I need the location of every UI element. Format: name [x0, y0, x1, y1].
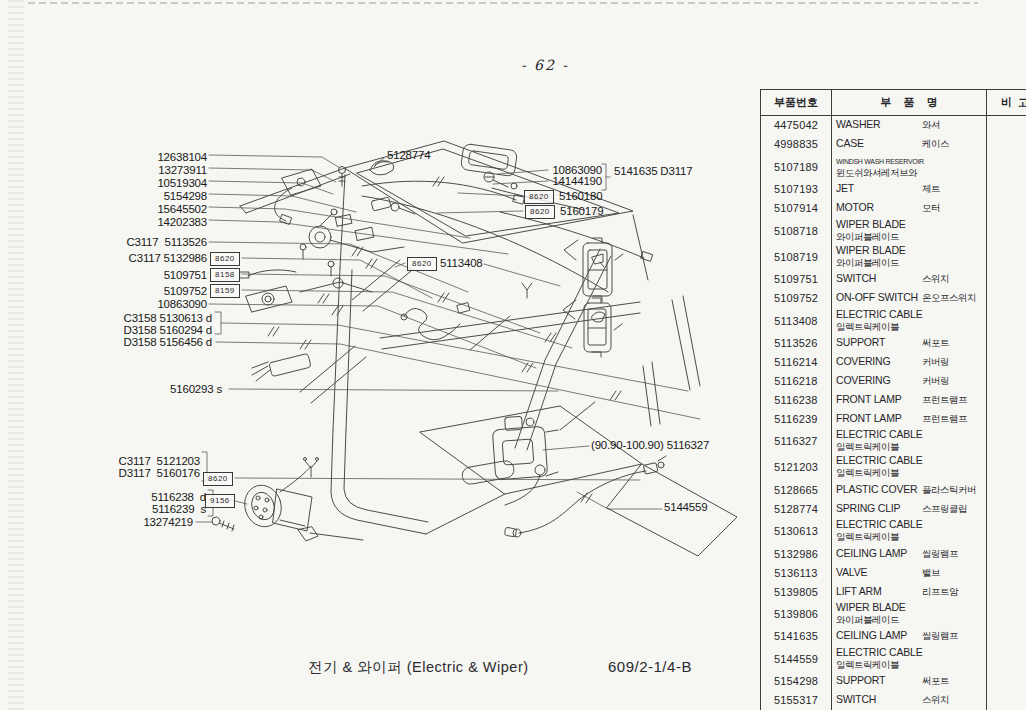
part-name-cell: FRONT LAMP프런트램프: [832, 390, 987, 409]
table-row: 5139806WIPER BLADE와이퍼블레이드: [761, 601, 1026, 627]
table-row: 5132986CEILING LAMP씰링램프: [761, 544, 1026, 563]
part-name-cell: WIPER BLADE와이퍼블레이드: [832, 601, 987, 627]
part-name-cell: ELECTRIC CABLE일렉트릭케이블: [832, 308, 987, 334]
table-row: 5107193JET제트: [761, 180, 1026, 199]
part-name-en: WINDSH WASH RESERVOIR: [836, 158, 922, 165]
remark-cell: [987, 116, 1026, 135]
leader-lines: [196, 155, 700, 522]
part-number-cell: 5136113: [761, 563, 832, 582]
part-number-cell: 5130613: [761, 518, 832, 544]
part-name-en: ON-OFF SWITCH: [836, 291, 922, 303]
part-number-cell: 5132986: [761, 544, 832, 563]
callout-15645502: 15645502: [120, 203, 207, 215]
part-number-cell: 5108719: [761, 244, 832, 270]
remark-cell: [987, 454, 1026, 480]
part-number-cell: 5116327: [761, 428, 832, 454]
callout-5113526: C3117 5113526: [115, 236, 207, 248]
table-row: 5108719WIPER BLADE와이퍼블레이드: [761, 244, 1026, 270]
part-name-cell: ELECTRIC CABLE일렉트릭케이블: [832, 428, 987, 454]
part-name-en: ELECTRIC CABLE: [836, 646, 922, 658]
screw-icon: [212, 517, 234, 531]
table-row: 5144559ELECTRIC CABLE일렉트릭케이블: [761, 646, 1026, 672]
part-number-cell: 5113526: [761, 334, 832, 353]
callout-box-5116239: 9156: [205, 494, 235, 508]
part-name-ko: 일렉트릭케이블: [836, 531, 899, 542]
table-row: 5155317SWITCH스위치: [761, 691, 1026, 710]
remark-cell: [987, 563, 1026, 582]
part-name-ko: 커버링: [922, 375, 949, 386]
part-name-ko: 일렉트릭케이블: [836, 321, 899, 332]
part-name-ko: 윈도쉬와셔레저브와: [836, 167, 917, 178]
spring-clip: [370, 161, 394, 175]
part-name-en: CEILING LAMP: [836, 547, 922, 559]
callout-box-5113408: 8620: [407, 257, 437, 271]
callout-5128774: 5128774: [387, 149, 430, 161]
part-name-ko: 와셔: [922, 119, 940, 130]
part-name-cell: CEILING LAMP씰링램프: [832, 544, 987, 563]
part-name-en: ELECTRIC CABLE: [836, 308, 922, 320]
part-name-en: SPRING CLIP: [836, 502, 922, 514]
remark-cell: [987, 409, 1026, 428]
part-name-cell: JET제트: [832, 180, 987, 199]
part-name-cell: ON-OFF SWITCH온오프스위치: [832, 289, 987, 308]
part-name-en: SUPPORT: [836, 674, 922, 686]
table-row: 5113526SUPPORT써포트: [761, 334, 1026, 353]
header-part-name: 부 품 명: [832, 90, 987, 116]
callout-13274219: 13274219: [108, 516, 193, 528]
table-row: 5141635CEILING LAMP씰링램프: [761, 627, 1026, 646]
remark-cell: [987, 646, 1026, 672]
callout-10863090-left: 10863090: [120, 298, 207, 310]
remark-cell: [987, 334, 1026, 353]
part-name-ko: 플라스틱커버: [922, 484, 976, 495]
part-name-cell: VALVE밸브: [832, 563, 987, 582]
remark-cell: [987, 289, 1026, 308]
parts-table-header: 부품번호 부 품 명 비 고: [761, 90, 1026, 116]
table-row: 5139805LIFT ARM리프트암: [761, 582, 1026, 601]
part-number-cell: 5141635: [761, 627, 832, 646]
front-lamp-unit: [239, 466, 318, 541]
header-part-number: 부품번호: [761, 90, 832, 116]
callout-12638104: 12638104: [120, 151, 207, 163]
table-row: 5109752ON-OFF SWITCH온오프스위치: [761, 289, 1026, 308]
table-row: 5136113VALVE밸브: [761, 563, 1026, 582]
table-row: 5128665PLASTIC COVER플라스틱커버: [761, 480, 1026, 499]
part-name-en: FRONT LAMP: [836, 393, 922, 405]
part-name-en: ELECTRIC CABLE: [836, 428, 922, 440]
callout-box-5160179: 8620: [525, 205, 555, 219]
part-name-en: ELECTRIC CABLE: [836, 454, 922, 466]
remark-cell: [987, 601, 1026, 627]
table-row: 5109751SWITCH스위치: [761, 270, 1026, 289]
part-number-cell: 5144559: [761, 646, 832, 672]
remark-cell: [987, 544, 1026, 563]
callout-5116238: 5116238 d: [128, 491, 206, 503]
part-name-ko: 일렉트릭케이블: [836, 659, 899, 670]
remark-cell: [987, 135, 1026, 154]
callout-5160176: D3117 5160176: [105, 467, 200, 479]
document-code: 609/2-1/4-B: [608, 658, 692, 675]
part-name-cell: SUPPORT써포트: [832, 334, 987, 353]
part-name-cell: PLASTIC COVER플라스틱커버: [832, 480, 987, 499]
part-number-cell: 5139806: [761, 601, 832, 627]
part-name-ko: 스프링클립: [922, 503, 967, 514]
part-number-cell: 5154298: [761, 672, 832, 691]
part-name-ko: 일렉트릭케이블: [836, 441, 899, 452]
table-row: 5130613ELECTRIC CABLE일렉트릭케이블: [761, 518, 1026, 544]
table-row: 5116239FRONT LAMP프런트램프: [761, 409, 1026, 428]
part-number-cell: 5116218: [761, 372, 832, 391]
part-name-ko: 와이퍼블레이드: [836, 231, 899, 242]
part-name-cell: FRONT LAMP프런트램프: [832, 409, 987, 428]
remark-cell: [987, 582, 1026, 601]
part-name-en: CASE: [836, 137, 922, 149]
part-name-ko: 밸브: [922, 567, 940, 578]
part-number-cell: 5155317: [761, 691, 832, 710]
part-name-ko: 씰링램프: [922, 548, 958, 559]
part-number-cell: 5128665: [761, 480, 832, 499]
part-number-cell: 5116239: [761, 409, 832, 428]
part-name-en: SWITCH: [836, 693, 922, 705]
remark-cell: [987, 372, 1026, 391]
part-name-ko: 제트: [922, 183, 940, 194]
callout-box-5109752: 8159: [210, 284, 240, 298]
part-name-ko: 모터: [922, 202, 940, 213]
part-number-cell: 5116214: [761, 353, 832, 372]
part-name-en: WIPER BLADE: [836, 601, 922, 613]
callout-box-5132986: 8620: [210, 252, 240, 266]
callout-5132986: C3117 5132986: [115, 252, 207, 264]
remark-cell: [987, 154, 1026, 180]
part-name-en: COVERING: [836, 355, 922, 367]
coiled-cable: [401, 303, 470, 340]
harness-connector: [252, 353, 311, 381]
callout-14144190: 14144190: [548, 175, 602, 187]
callout-5109752: 5109752: [130, 285, 207, 297]
callout-5154298: 5154298: [120, 190, 207, 202]
part-name-ko: 프런트램프: [922, 413, 967, 424]
rocker-switch-1: [583, 238, 612, 302]
part-number-cell: 4475042: [761, 116, 832, 135]
callout-14202383: 14202383: [120, 216, 207, 228]
part-name-ko: 일렉트릭케이블: [836, 467, 899, 478]
parts-table: 부품번호 부 품 명 비 고 4475042WASHER와셔4998835CAS…: [760, 89, 1026, 710]
part-name-ko: 와이퍼블레이드: [836, 257, 899, 268]
callout-5113408: 5113408: [440, 257, 483, 269]
part-name-en: SUPPORT: [836, 336, 922, 348]
part-name-en: FRONT LAMP: [836, 412, 922, 424]
table-row: 4998835CASE케이스: [761, 135, 1026, 154]
roof-wiring: [362, 181, 653, 261]
remark-cell: [987, 199, 1026, 218]
part-name-cell: LIFT ARM리프트암: [832, 582, 987, 601]
parts-table-body: 4475042WASHER와셔4998835CASE케이스5107189WIND…: [761, 116, 1026, 710]
table-row: 5108718WIPER BLADE와이퍼블레이드: [761, 218, 1026, 244]
remark-cell: [987, 499, 1026, 518]
table-row: 5113408ELECTRIC CABLE일렉트릭케이블: [761, 308, 1026, 334]
part-name-ko: 써포트: [922, 337, 949, 348]
part-name-ko: 리프트암: [922, 586, 958, 597]
part-name-ko: 씰링램프: [922, 630, 958, 641]
remark-cell: [987, 353, 1026, 372]
part-name-ko: 프런트램프: [922, 394, 967, 405]
part-number-cell: 5109752: [761, 289, 832, 308]
callout-5156456: D3158 5156456 d: [108, 336, 212, 348]
table-row: 5116214COVERING커버링: [761, 353, 1026, 372]
callout-5160180: 5160180: [559, 190, 602, 202]
part-name-cell: SWITCH스위치: [832, 270, 987, 289]
part-name-cell: SUPPORT써포트: [832, 672, 987, 691]
table-row: 5128774SPRING CLIP스프링클립: [761, 499, 1026, 518]
callout-5109751: 5109751: [130, 269, 207, 281]
callout-5121203: C3117 5121203: [105, 455, 200, 467]
callout-5144559: 5144559: [664, 501, 707, 513]
table-row: 5116238FRONT LAMP프런트램프: [761, 390, 1026, 409]
part-name-ko: 와이퍼블레이드: [836, 614, 899, 625]
part-number-cell: 5109751: [761, 270, 832, 289]
part-name-cell: CASE케이스: [832, 135, 987, 154]
callout-box-5160176: 8620: [203, 472, 233, 486]
part-name-ko: 스위치: [922, 694, 949, 705]
table-row: 4475042WASHER와셔: [761, 116, 1026, 135]
remark-cell: [987, 428, 1026, 454]
part-name-en: LIFT ARM: [836, 585, 922, 597]
callout-5116239: 5116239 s: [128, 503, 206, 515]
callout-5130613: C3158 5130613 d: [108, 312, 212, 324]
remark-cell: [987, 180, 1026, 199]
table-row: 5116327ELECTRIC CABLE일렉트릭케이블: [761, 428, 1026, 454]
callout-10519304: 10519304: [120, 177, 207, 189]
callout-5141635: 5141635 D3117: [614, 165, 692, 177]
part-name-cell: COVERING커버링: [832, 372, 987, 391]
part-number-cell: 5108718: [761, 218, 832, 244]
part-name-ko: 써포트: [922, 675, 949, 686]
header-remark: 비 고: [987, 90, 1026, 116]
part-number-cell: 5116238: [761, 390, 832, 409]
callout-5160179: 5160179: [560, 205, 603, 217]
part-name-en: COVERING: [836, 374, 922, 386]
table-row: 5107189WINDSH WASH RESERVOIR윈도쉬와셔레저브와: [761, 154, 1026, 180]
part-name-cell: ELECTRIC CABLE일렉트릭케이블: [832, 518, 987, 544]
part-name-en: WIPER BLADE: [836, 218, 922, 230]
part-name-cell: COVERING커버링: [832, 353, 987, 372]
remark-cell: [987, 244, 1026, 270]
electric-cable: [504, 456, 666, 537]
remark-cell: [987, 308, 1026, 334]
part-name-en: MOTOR: [836, 201, 922, 213]
part-name-ko: 커버링: [922, 356, 949, 367]
table-row: 5121203ELECTRIC CABLE일렉트릭케이블: [761, 454, 1026, 480]
part-name-cell: SPRING CLIP스프링클립: [832, 499, 987, 518]
part-name-cell: WIPER BLADE와이퍼블레이드: [832, 244, 987, 270]
part-name-cell: CEILING LAMP씰링램프: [832, 627, 987, 646]
part-name-en: SWITCH: [836, 272, 922, 284]
part-number-cell: 4998835: [761, 135, 832, 154]
part-number-cell: 5113408: [761, 308, 832, 334]
callout-5160293: 5160293 s: [135, 383, 222, 395]
part-name-cell: WINDSH WASH RESERVOIR윈도쉬와셔레저브와: [832, 154, 987, 180]
callout-5160294: D3158 5160294 d: [108, 324, 212, 336]
part-name-ko: 스위치: [922, 273, 949, 284]
part-name-cell: ELECTRIC CABLE일렉트릭케이블: [832, 646, 987, 672]
remark-cell: [987, 518, 1026, 544]
remark-cell: [987, 390, 1026, 409]
part-number-cell: 5128774: [761, 499, 832, 518]
part-number-cell: 5107914: [761, 199, 832, 218]
remark-cell: [987, 691, 1026, 710]
callout-13273911: 13273911: [120, 164, 207, 176]
remark-cell: [987, 270, 1026, 289]
remark-cell: [987, 627, 1026, 646]
part-name-ko: 케이스: [922, 138, 949, 149]
part-name-en: WASHER: [836, 118, 922, 130]
part-name-cell: WASHER와셔: [832, 116, 987, 135]
table-row: 5154298SUPPORT써포트: [761, 672, 1026, 691]
part-name-ko: 온오프스위치: [922, 292, 976, 303]
table-row: 5116218COVERING커버링: [761, 372, 1026, 391]
remark-cell: [987, 218, 1026, 244]
part-name-en: JET: [836, 182, 922, 194]
remark-cell: [987, 480, 1026, 499]
part-number-cell: 5107189: [761, 154, 832, 180]
part-name-en: ELECTRIC CABLE: [836, 518, 922, 530]
part-name-en: CEILING LAMP: [836, 629, 922, 641]
cab-frame: [240, 141, 737, 556]
remark-cell: [987, 672, 1026, 691]
callout-5116327: (90.90-100.90) 5116327: [591, 439, 709, 451]
diagram-title: 전기 & 와이퍼 (Electric & Wiper): [308, 658, 529, 677]
part-number-cell: 5139805: [761, 582, 832, 601]
part-name-cell: SWITCH스위치: [832, 691, 987, 710]
part-name-en: VALVE: [836, 566, 922, 578]
part-name-en: PLASTIC COVER: [836, 483, 922, 495]
callout-box-5109751: 8158: [210, 268, 240, 282]
table-row: 5107914MOTOR모터: [761, 199, 1026, 218]
part-name-cell: MOTOR모터: [832, 199, 987, 218]
part-name-cell: WIPER BLADE와이퍼블레이드: [832, 218, 987, 244]
part-name-cell: ELECTRIC CABLE일렉트릭케이블: [832, 454, 987, 480]
part-name-en: WIPER BLADE: [836, 244, 922, 256]
part-number-cell: 5107193: [761, 180, 832, 199]
callout-box-5160180: 8620: [524, 190, 554, 204]
part-number-cell: 5121203: [761, 454, 832, 480]
